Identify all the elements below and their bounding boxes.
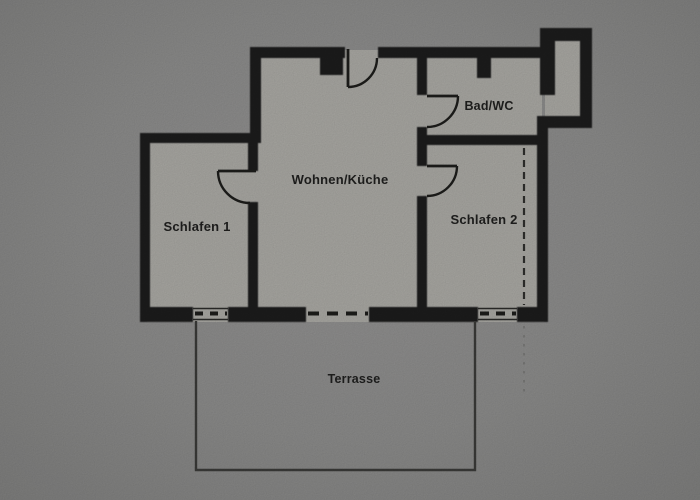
scanned-floor-plan-page: Schlafen 1 Wohnen/Küche Bad/WC Schlafen … bbox=[0, 0, 700, 500]
scan-grain-overlay bbox=[0, 0, 700, 500]
floor-plan-drawing: Schlafen 1 Wohnen/Küche Bad/WC Schlafen … bbox=[0, 0, 700, 500]
